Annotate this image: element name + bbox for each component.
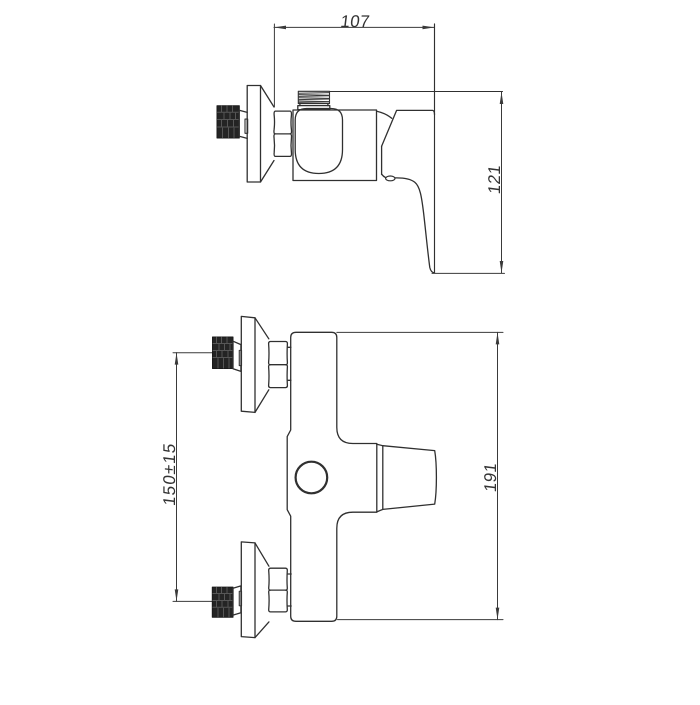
svg-text:121: 121 [485,164,504,196]
svg-text:107: 107 [339,12,371,31]
svg-text:150±15: 150±15 [160,441,179,506]
svg-text:191: 191 [481,462,500,494]
